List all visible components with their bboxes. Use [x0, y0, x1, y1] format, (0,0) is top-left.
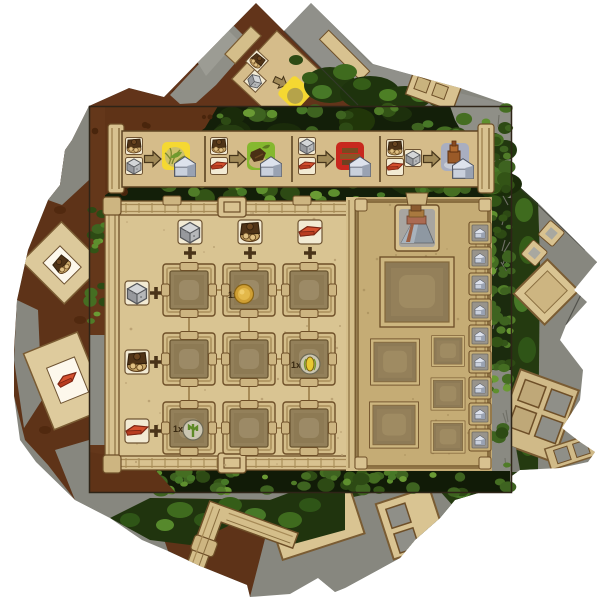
- svg-text:1x: 1x: [173, 424, 183, 434]
